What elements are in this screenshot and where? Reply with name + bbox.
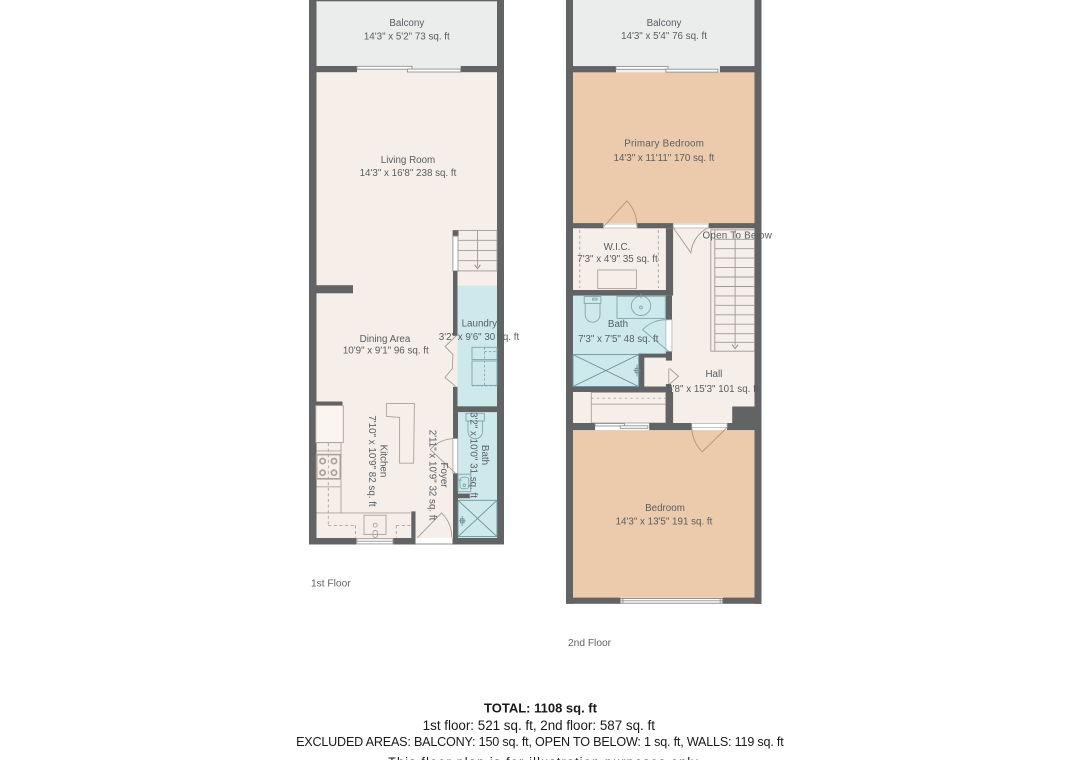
svg-text:Balcony: Balcony bbox=[389, 18, 424, 29]
svg-text:Hall: Hall bbox=[705, 369, 722, 380]
svg-text:TOTAL: 1108 sq. ft: TOTAL: 1108 sq. ft bbox=[484, 701, 598, 716]
svg-text:5'8" x 15'3" 101 sq. ft: 5'8" x 15'3" 101 sq. ft bbox=[667, 384, 759, 395]
svg-text:Bedroom: Bedroom bbox=[645, 503, 685, 514]
svg-text:Dining Area: Dining Area bbox=[360, 334, 411, 345]
svg-text:14'3" x 5'2" 73 sq. ft: 14'3" x 5'2" 73 sq. ft bbox=[364, 31, 450, 42]
svg-text:EXCLUDED AREAS: BALCONY: 150 s: EXCLUDED AREAS: BALCONY: 150 sq. ft, OPE… bbox=[296, 735, 784, 749]
svg-text:This floor plan is for illustr: This floor plan is for illustration purp… bbox=[388, 756, 699, 760]
svg-text:2nd Floor: 2nd Floor bbox=[568, 638, 612, 649]
svg-text:3'2" x 9'6" 30 sq. ft: 3'2" x 9'6" 30 sq. ft bbox=[439, 332, 520, 343]
svg-text:2'11" x 10'9" 32 sq. ft: 2'11" x 10'9" 32 sq. ft bbox=[427, 430, 438, 521]
svg-text:14'3" x 13'5" 191 sq. ft: 14'3" x 13'5" 191 sq. ft bbox=[616, 517, 713, 528]
svg-text:Balcony: Balcony bbox=[647, 18, 682, 29]
svg-text:Bath: Bath bbox=[479, 445, 490, 465]
svg-text:Foyer: Foyer bbox=[438, 462, 449, 488]
svg-text:Open To Below: Open To Below bbox=[703, 231, 773, 242]
svg-text:14'3" x 16'8" 238 sq. ft: 14'3" x 16'8" 238 sq. ft bbox=[360, 168, 457, 179]
svg-text:14'3" x 11'11" 170 sq. ft: 14'3" x 11'11" 170 sq. ft bbox=[614, 153, 715, 164]
svg-text:3'2" x 10'0" 31 sq. ft: 3'2" x 10'0" 31 sq. ft bbox=[468, 412, 479, 498]
svg-text:Kitchen: Kitchen bbox=[377, 445, 388, 478]
svg-text:1st floor: 521 sq. ft, 2nd flo: 1st floor: 521 sq. ft, 2nd floor: 587 sq… bbox=[423, 718, 656, 733]
svg-text:7'3" x 7'5" 48 sq. ft: 7'3" x 7'5" 48 sq. ft bbox=[578, 334, 659, 345]
svg-text:10'9" x 9'1" 96 sq. ft: 10'9" x 9'1" 96 sq. ft bbox=[343, 345, 429, 356]
svg-text:W.I.C.: W.I.C. bbox=[604, 242, 631, 253]
svg-text:1st Floor: 1st Floor bbox=[311, 579, 351, 590]
svg-text:Bath: Bath bbox=[608, 319, 628, 330]
svg-text:Primary Bedroom: Primary Bedroom bbox=[624, 139, 704, 150]
svg-text:14'3" x 5'4" 76 sq. ft: 14'3" x 5'4" 76 sq. ft bbox=[621, 31, 707, 42]
svg-text:Living Room: Living Room bbox=[381, 155, 435, 166]
svg-text:7'3" x 4'9" 35 sq. ft: 7'3" x 4'9" 35 sq. ft bbox=[577, 254, 658, 265]
svg-text:Laundry: Laundry bbox=[462, 318, 498, 329]
svg-text:7'10" x 10'9" 82 sq. ft: 7'10" x 10'9" 82 sq. ft bbox=[366, 415, 377, 507]
